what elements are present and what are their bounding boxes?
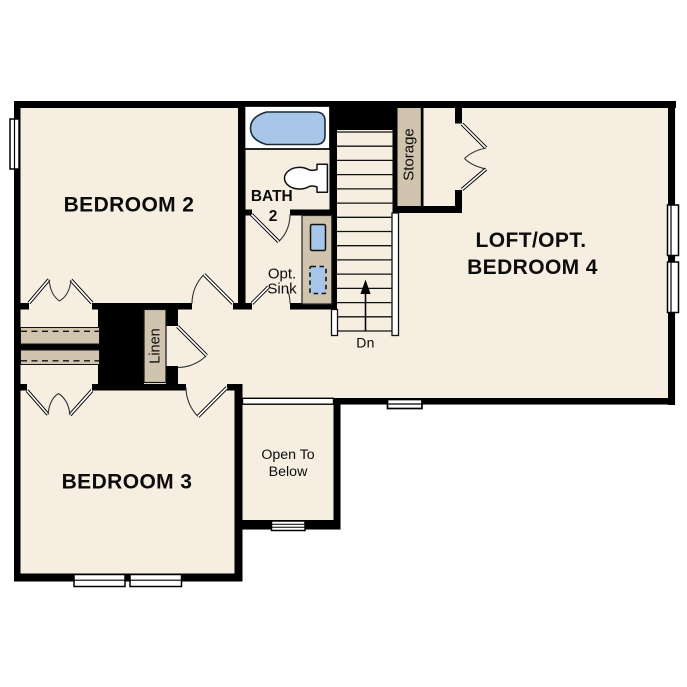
- svg-text:LOFT/OPT.: LOFT/OPT.: [476, 229, 587, 252]
- svg-text:BATH: BATH: [251, 188, 293, 205]
- svg-text:Linen: Linen: [148, 328, 164, 363]
- svg-text:2: 2: [269, 208, 278, 225]
- svg-text:Below: Below: [269, 464, 308, 480]
- svg-text:Open To: Open To: [261, 447, 314, 463]
- svg-text:Sink: Sink: [267, 281, 297, 298]
- svg-text:Storage: Storage: [401, 128, 418, 181]
- svg-text:BEDROOM 2: BEDROOM 2: [64, 193, 195, 216]
- svg-text:Dn: Dn: [356, 335, 375, 351]
- svg-text:BEDROOM 4: BEDROOM 4: [467, 256, 598, 279]
- svg-text:BEDROOM 3: BEDROOM 3: [62, 471, 193, 494]
